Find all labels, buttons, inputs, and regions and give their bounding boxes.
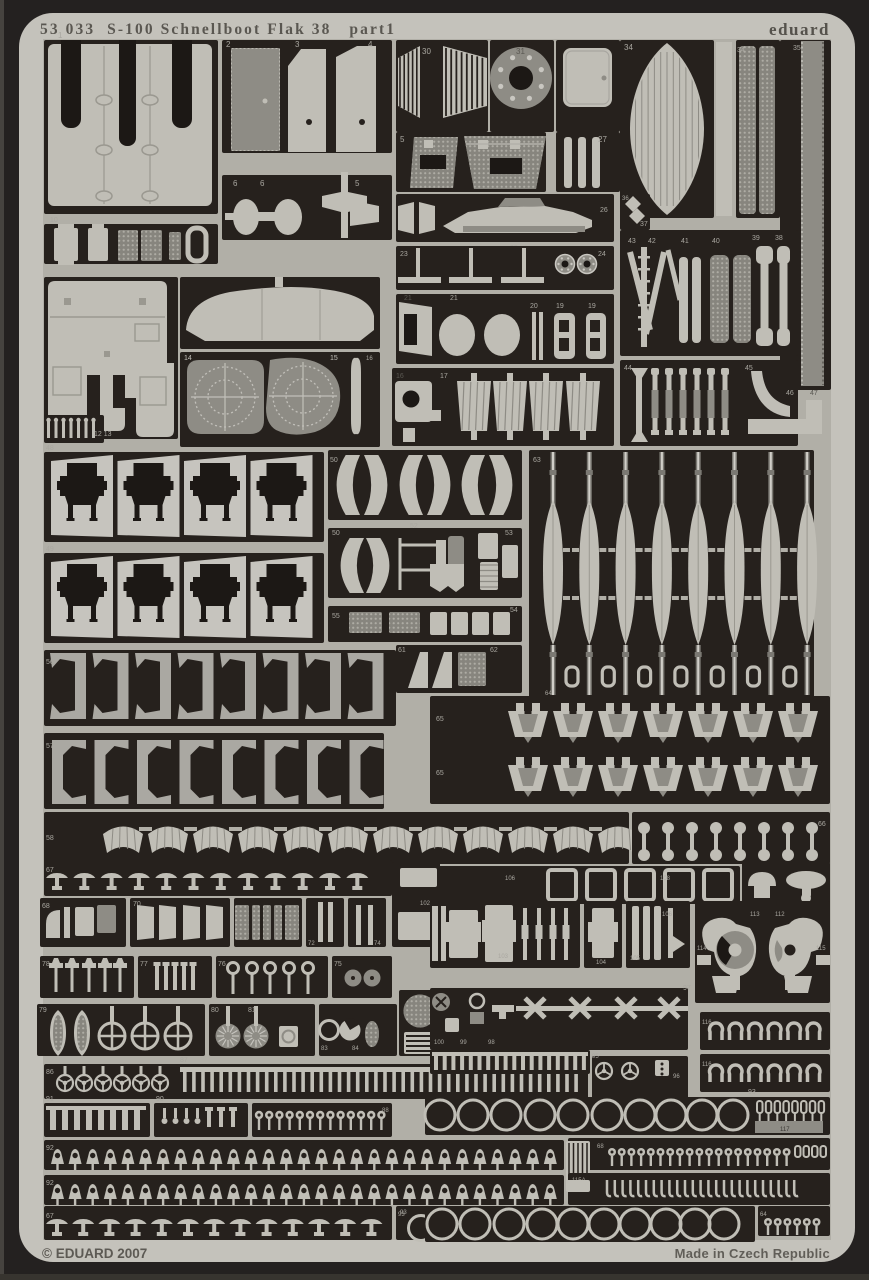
svg-text:86: 86: [46, 1069, 54, 1076]
svg-text:117: 117: [780, 1127, 790, 1133]
svg-text:47: 47: [810, 390, 818, 397]
svg-text:34: 34: [624, 43, 633, 52]
svg-text:67: 67: [46, 1213, 54, 1220]
svg-text:68: 68: [42, 903, 50, 910]
svg-text:65: 65: [436, 716, 444, 723]
svg-text:98: 98: [488, 1040, 495, 1046]
svg-text:50: 50: [332, 530, 340, 537]
svg-text:93: 93: [400, 1210, 407, 1216]
svg-text:112: 112: [775, 912, 785, 918]
svg-text:Made in Czech Republic: Made in Czech Republic: [675, 1246, 830, 1261]
svg-text:23: 23: [400, 251, 408, 258]
svg-text:57: 57: [46, 743, 54, 750]
svg-text:75: 75: [334, 961, 342, 968]
svg-text:103: 103: [498, 954, 509, 960]
svg-text:104: 104: [596, 960, 607, 966]
svg-text:106: 106: [662, 912, 673, 918]
svg-text:17: 17: [440, 373, 448, 380]
svg-text:39: 39: [752, 235, 760, 242]
svg-text:115: 115: [816, 946, 826, 952]
svg-text:35: 35: [793, 45, 801, 52]
svg-text:74: 74: [374, 941, 381, 947]
svg-text:84: 84: [352, 1046, 359, 1052]
svg-text:19: 19: [556, 303, 564, 310]
svg-text:5: 5: [400, 135, 405, 144]
svg-text:53: 53: [505, 530, 513, 537]
svg-text:83: 83: [321, 1046, 328, 1052]
svg-text:68: 68: [597, 1144, 604, 1150]
svg-text:53 033 S-100 Schnellboot Flak: 53 033 S-100 Schnellboot Flak 38 part1: [40, 21, 396, 38]
svg-text:81: 81: [248, 1007, 256, 1014]
svg-text:113: 113: [750, 912, 760, 918]
svg-text:95: 95: [592, 1054, 599, 1060]
svg-text:21: 21: [404, 295, 412, 302]
svg-text:16: 16: [396, 373, 404, 380]
svg-text:26: 26: [600, 207, 608, 214]
svg-text:36: 36: [622, 196, 629, 202]
svg-text:78: 78: [42, 961, 50, 968]
svg-text:97: 97: [683, 985, 691, 992]
svg-text:© EDUARD 2007: © EDUARD 2007: [42, 1246, 147, 1261]
svg-text:92: 92: [46, 1145, 54, 1152]
svg-text:43: 43: [628, 238, 636, 245]
svg-text:27: 27: [598, 135, 607, 144]
svg-text:52: 52: [410, 523, 418, 530]
svg-text:70: 70: [133, 901, 141, 908]
svg-text:114: 114: [697, 946, 707, 952]
svg-text:46: 46: [786, 390, 794, 397]
svg-text:31: 31: [516, 47, 525, 56]
svg-text:63: 63: [533, 457, 541, 464]
svg-text:24: 24: [598, 251, 606, 258]
svg-text:2: 2: [226, 40, 231, 49]
svg-text:116: 116: [702, 1020, 712, 1026]
svg-text:eduard: eduard: [769, 20, 830, 39]
svg-text:88: 88: [382, 1108, 389, 1114]
svg-text:38: 38: [775, 235, 783, 242]
svg-text:79: 79: [39, 1007, 47, 1014]
svg-text:50: 50: [330, 457, 338, 464]
svg-text:20: 20: [530, 303, 538, 310]
svg-text:61: 61: [398, 647, 406, 654]
svg-text:1: 1: [58, 31, 63, 40]
svg-text:19: 19: [588, 303, 596, 310]
svg-text:72: 72: [308, 941, 315, 947]
svg-text:56: 56: [46, 659, 54, 666]
svg-text:16: 16: [366, 356, 373, 362]
svg-text:4: 4: [368, 40, 373, 49]
svg-text:12 13: 12 13: [94, 431, 112, 438]
svg-text:42: 42: [648, 238, 656, 245]
svg-text:106: 106: [505, 876, 516, 882]
svg-text:77: 77: [140, 961, 148, 968]
svg-text:15: 15: [330, 355, 338, 362]
svg-text:99: 99: [460, 1040, 467, 1046]
svg-text:48: 48: [46, 445, 54, 452]
svg-text:65: 65: [436, 770, 444, 777]
svg-text:41: 41: [681, 238, 689, 245]
svg-text:76: 76: [218, 961, 226, 968]
svg-text:21: 21: [450, 295, 458, 302]
svg-text:108: 108: [660, 876, 671, 882]
svg-text:30: 30: [422, 47, 431, 56]
svg-text:40: 40: [712, 238, 720, 245]
svg-text:45: 45: [745, 365, 753, 372]
svg-text:100: 100: [434, 1040, 445, 1046]
svg-text:37: 37: [640, 221, 648, 228]
svg-text:105: 105: [630, 956, 641, 962]
svg-text:91: 91: [46, 1096, 54, 1103]
svg-text:92: 92: [46, 1180, 54, 1187]
svg-text:6: 6: [260, 179, 265, 188]
svg-text:5: 5: [355, 179, 360, 188]
svg-text:55: 55: [332, 613, 340, 620]
svg-text:58: 58: [46, 835, 54, 842]
svg-text:116: 116: [702, 1062, 712, 1068]
svg-text:67: 67: [46, 867, 54, 874]
svg-text:87: 87: [180, 1057, 188, 1064]
svg-text:90: 90: [156, 1096, 164, 1103]
svg-text:49: 49: [46, 546, 54, 553]
svg-text:93: 93: [748, 1089, 756, 1096]
svg-text:66: 66: [818, 821, 826, 828]
svg-text:54: 54: [510, 607, 518, 614]
svg-text:102: 102: [420, 901, 431, 907]
svg-text:44: 44: [624, 365, 632, 372]
svg-text:3: 3: [295, 40, 300, 49]
svg-text:64: 64: [760, 1212, 767, 1218]
svg-text:96: 96: [673, 1074, 680, 1080]
svg-text:80: 80: [211, 1007, 219, 1014]
svg-text:34: 34: [737, 47, 745, 54]
svg-text:62: 62: [490, 647, 498, 654]
svg-text:6: 6: [233, 179, 238, 188]
svg-text:10: 10: [50, 217, 58, 224]
svg-text:14: 14: [184, 355, 192, 362]
